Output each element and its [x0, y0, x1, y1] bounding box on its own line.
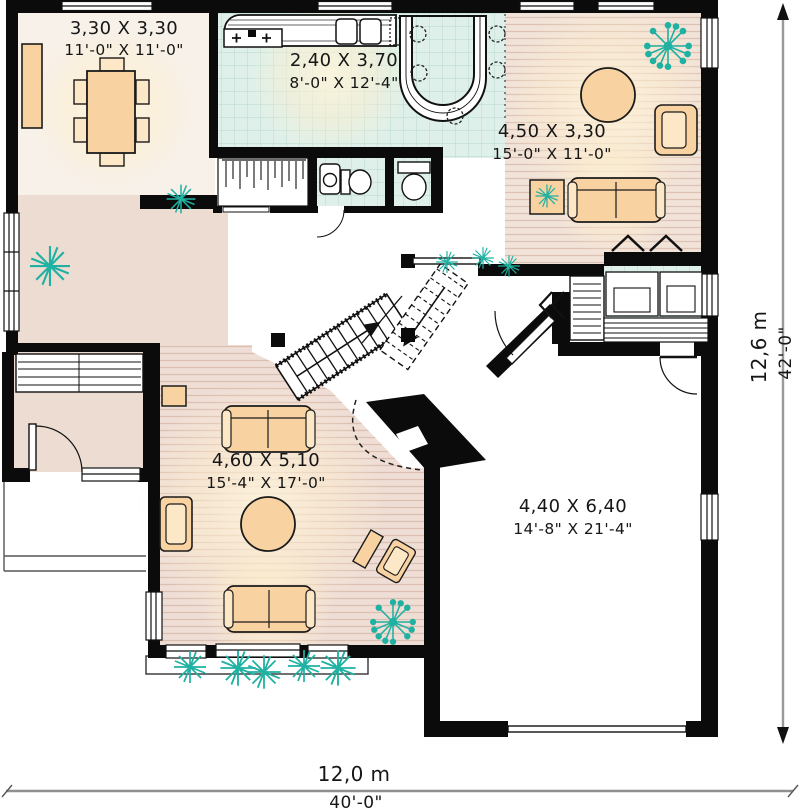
- garage-door-interior: [660, 357, 697, 394]
- powder-door: [317, 206, 344, 237]
- powder-wall-a: [308, 150, 317, 212]
- sofa: [224, 586, 315, 632]
- pantry-closet: [218, 158, 308, 206]
- kitchen-dim-imperial: 8'-0" X 12'-4": [289, 74, 398, 92]
- post: [271, 333, 285, 347]
- round-table: [241, 497, 295, 551]
- dining-kitchen-wall: [209, 13, 218, 158]
- living-south-wall-b: [604, 252, 701, 266]
- arrow-up-icon: [777, 3, 789, 20]
- garage-overhead-door: [508, 726, 686, 732]
- window: [520, 2, 574, 11]
- garage-north-wall-b: [694, 342, 718, 356]
- stove: [224, 29, 282, 47]
- window: [82, 468, 140, 481]
- powder-wall-c: [431, 147, 443, 213]
- buffet: [22, 44, 42, 128]
- garage-north-wall-a: [558, 342, 660, 356]
- post: [401, 328, 415, 342]
- pantry-sliding-door: [222, 206, 270, 213]
- garage-west-wall: [424, 430, 440, 723]
- living-dim-metric: 4,50 X 3,30: [498, 121, 606, 142]
- vestibule-east-wall: [143, 352, 160, 482]
- sink-bowl: [324, 174, 337, 187]
- sofa: [568, 178, 665, 222]
- closet-strip-north-wall: [213, 147, 443, 158]
- west-wall-upper: [6, 0, 18, 215]
- overall-depth-imperial: 42'-0": [776, 326, 796, 379]
- dining-dim-imperial: 11'-0" X 11'-0": [64, 41, 184, 59]
- vestibule-west-wall: [2, 352, 14, 482]
- window: [701, 494, 718, 540]
- window: [62, 2, 152, 11]
- armchair: [160, 497, 192, 551]
- floor-plan-svg: 3,30 X 3,30 11'-0" X 11'-0" 2,40 X 3,70 …: [0, 0, 800, 811]
- chair: [100, 153, 124, 166]
- side-stoop: [4, 482, 146, 571]
- family-west-wall-a: [148, 480, 160, 595]
- plant-icon: [371, 600, 415, 644]
- family-dim-metric: 4,60 X 5,10: [212, 450, 320, 471]
- chair: [136, 80, 149, 104]
- arrow-down-icon: [777, 727, 789, 744]
- armchair: [655, 105, 697, 155]
- porch-steps: [604, 318, 708, 342]
- garage-dim-imperial: 14'-8" X 21'-4": [513, 520, 633, 538]
- chair: [136, 118, 149, 142]
- toilet-icon: [349, 170, 371, 194]
- plant-icon: [645, 23, 691, 69]
- window: [701, 18, 718, 68]
- vestibule-north-wall: [6, 343, 160, 352]
- vestibule-closet: [16, 354, 143, 392]
- bay-window: [4, 213, 19, 331]
- window: [598, 2, 654, 11]
- floor-plan: 3,30 X 3,30 11'-0" X 11'-0" 2,40 X 3,70 …: [0, 0, 800, 811]
- garage-south-wall-a: [424, 721, 508, 737]
- window: [216, 644, 300, 657]
- window: [318, 2, 392, 11]
- chair: [74, 118, 87, 142]
- toilet-tank: [398, 162, 430, 173]
- window: [146, 592, 162, 640]
- entry-closet: [570, 276, 604, 340]
- vestibule-south-wall-a: [2, 468, 30, 482]
- garage-dim-metric: 4,40 X 6,40: [519, 496, 627, 517]
- porch-planter: [660, 272, 702, 316]
- toilet-icon: [402, 174, 426, 200]
- dining-dim-metric: 3,30 X 3,30: [70, 18, 178, 39]
- round-table: [581, 68, 635, 122]
- kitchen-dim-metric: 2,40 X 3,70: [290, 50, 398, 71]
- overall-width-metric: 12,0 m: [318, 762, 391, 786]
- garage-south-wall-b: [686, 721, 718, 737]
- living-south-wall-a: [478, 264, 604, 276]
- overall-depth-metric: 12,6 m: [747, 311, 771, 384]
- cabinet: [162, 386, 186, 406]
- dining-table: [87, 71, 135, 153]
- window: [701, 274, 718, 316]
- east-wall: [701, 0, 718, 737]
- chair: [100, 58, 124, 71]
- living-dim-imperial: 15'-0" X 11'-0": [492, 145, 612, 163]
- sofa: [222, 406, 315, 452]
- family-dim-imperial: 15'-4" X 17'-0": [206, 474, 326, 492]
- overall-width-imperial: 40'-0": [329, 793, 382, 811]
- chair: [74, 80, 87, 104]
- powder-wall-b: [385, 150, 394, 212]
